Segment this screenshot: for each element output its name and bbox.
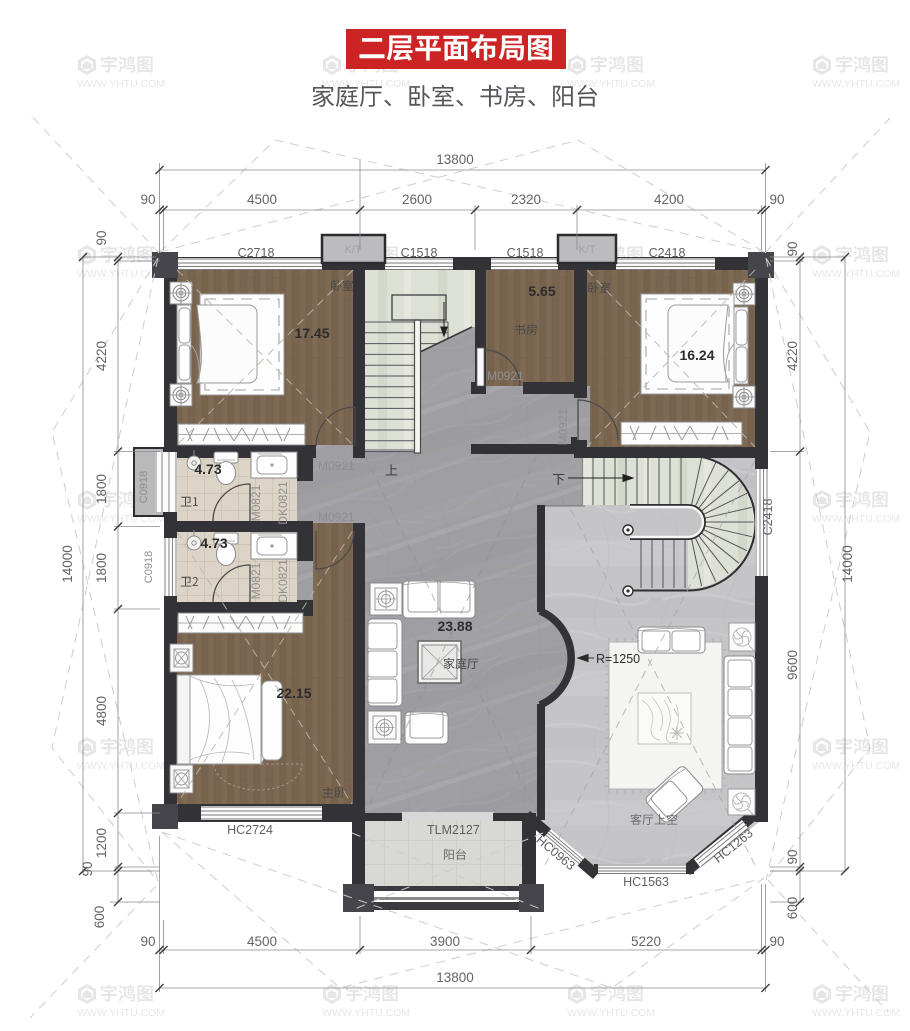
svg-text:WWW.YHTU.COM: WWW.YHTU.COM [322,78,410,90]
svg-text:HC1563: HC1563 [623,875,669,889]
svg-text:C1518: C1518 [507,246,544,260]
svg-text:M0821: M0821 [249,484,263,521]
svg-text:K/T: K/T [578,244,595,256]
svg-text:M0921: M0921 [318,459,355,473]
svg-text:WWW.YHTU.COM: WWW.YHTU.COM [812,78,900,90]
svg-text:5220: 5220 [631,934,661,949]
svg-text:WWW.YHTU.COM: WWW.YHTU.COM [567,1007,655,1019]
svg-text:C2418: C2418 [761,499,775,536]
svg-text:M0821: M0821 [249,562,263,599]
svg-text:DK0821: DK0821 [276,559,290,603]
svg-text:600: 600 [92,906,107,929]
svg-text:4800: 4800 [94,696,109,726]
svg-text:90: 90 [785,241,800,256]
svg-text:4200: 4200 [654,192,684,207]
svg-text:2320: 2320 [511,192,541,207]
svg-text:17.45: 17.45 [294,325,329,341]
svg-text:2600: 2600 [402,192,432,207]
svg-text:16.24: 16.24 [679,347,714,363]
svg-text:90: 90 [94,230,109,245]
svg-text:22.15: 22.15 [276,685,311,701]
svg-text:13800: 13800 [436,152,474,167]
svg-text:K/T: K/T [344,244,361,256]
svg-text:14000: 14000 [60,545,75,583]
svg-text:WWW.YHTU.COM: WWW.YHTU.COM [77,78,165,90]
svg-text:C0918: C0918 [138,471,150,503]
svg-text:4220: 4220 [94,341,109,371]
svg-text:4220: 4220 [785,341,800,371]
svg-text:90: 90 [80,861,95,876]
svg-text:R=1250: R=1250 [596,652,640,666]
svg-text:WWW.YHTU.COM: WWW.YHTU.COM [322,1007,410,1019]
svg-text:WWW.YHTU.COM: WWW.YHTU.COM [77,1007,165,1019]
svg-text:M0921: M0921 [318,510,355,524]
svg-text:M0921: M0921 [556,408,570,445]
svg-text:3900: 3900 [430,934,460,949]
svg-text:C0918: C0918 [143,551,155,583]
svg-text:C2718: C2718 [238,246,275,260]
svg-text:WWW.YHTU.COM: WWW.YHTU.COM [567,78,655,90]
svg-text:5.65: 5.65 [528,283,555,299]
svg-text:13800: 13800 [436,970,474,985]
svg-text:4.73: 4.73 [194,461,221,477]
svg-text:90: 90 [769,934,784,949]
svg-text:TLM2127: TLM2127 [427,823,480,837]
svg-text:1200: 1200 [94,828,109,858]
svg-text:WWW.YHTU.COM: WWW.YHTU.COM [77,760,165,772]
svg-text:600: 600 [785,897,800,920]
svg-text:90: 90 [140,934,155,949]
svg-text:9600: 9600 [785,650,800,680]
svg-text:M0921: M0921 [487,369,524,383]
svg-text:WWW.YHTU.COM: WWW.YHTU.COM [812,760,900,772]
svg-text:WWW.YHTU.COM: WWW.YHTU.COM [812,268,900,280]
svg-text:4500: 4500 [247,934,277,949]
svg-text:WWW.YHTU.COM: WWW.YHTU.COM [812,513,900,525]
svg-text:4.73: 4.73 [200,535,227,551]
svg-text:HC2724: HC2724 [227,823,273,837]
svg-text:DK0821: DK0821 [276,481,290,525]
svg-text:WWW.YHTU.COM: WWW.YHTU.COM [812,1007,900,1019]
svg-text:4500: 4500 [247,192,277,207]
svg-text:1800: 1800 [94,553,109,583]
svg-text:14000: 14000 [840,545,855,583]
svg-text:C2418: C2418 [649,246,686,260]
svg-text:WWW.YHTU.COM: WWW.YHTU.COM [77,268,165,280]
svg-text:90: 90 [140,192,155,207]
svg-text:C1518: C1518 [401,246,438,260]
svg-text:90: 90 [785,849,800,864]
svg-text:90: 90 [769,192,784,207]
svg-text:1800: 1800 [94,474,109,504]
